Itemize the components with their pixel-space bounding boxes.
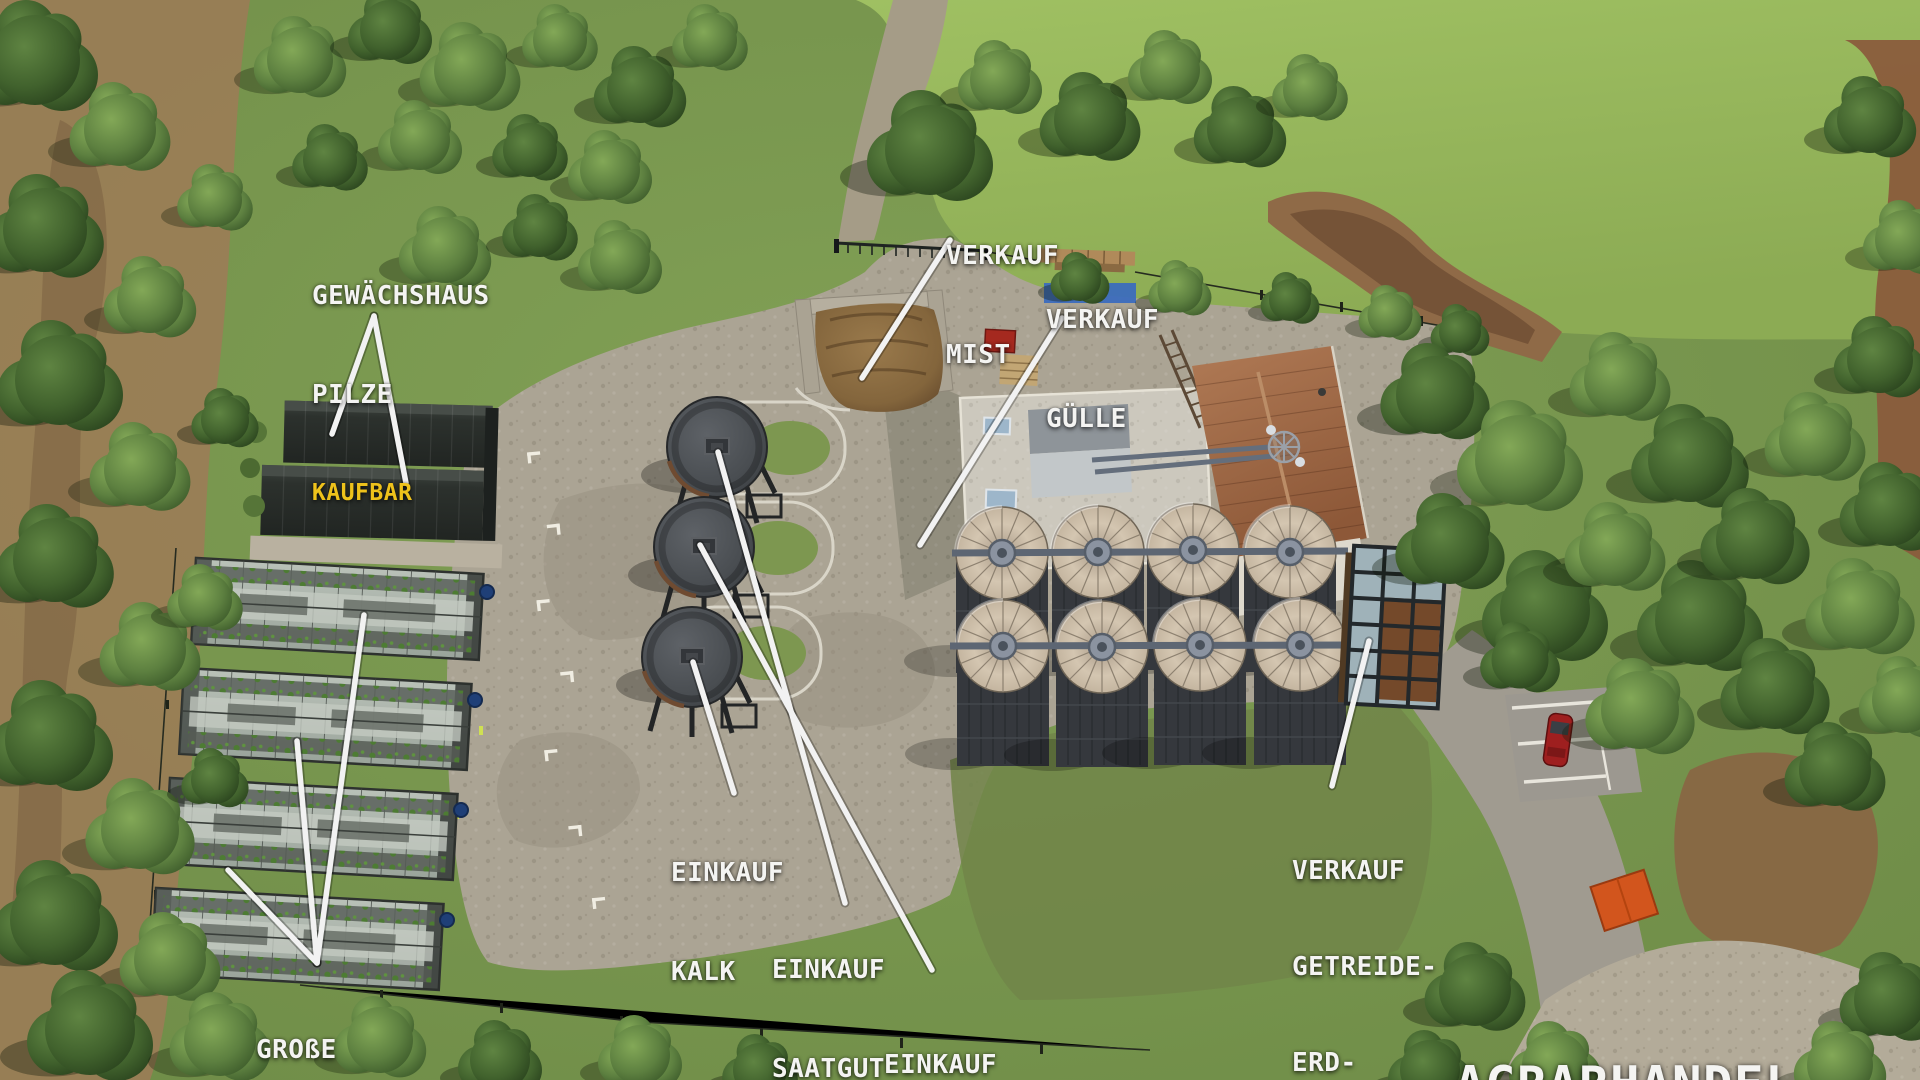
title-line: AGRARHANDEL — [1455, 1058, 1920, 1080]
map-screenshot: GEWÄCHSHAUS PILZE KAUFBAR VERKAUF MIST V… — [0, 0, 1920, 1080]
label-line: EINKAUF — [884, 1049, 1094, 1080]
label-glasgewaechshaeuser: GROßE GLASGEWÄCHSHÄUSER SEPERAT KAUFBAR — [256, 968, 531, 1080]
label-verkauf-guelle: VERKAUF GÜLLE — [1046, 238, 1159, 469]
label-line: GEWÄCHSHAUS — [312, 280, 490, 313]
label-line: EINKAUF — [772, 954, 885, 987]
roof-vent — [1318, 388, 1326, 396]
grain-silos — [904, 504, 1352, 771]
label-line: MIST — [946, 339, 1059, 372]
label-line: VERKAUF — [946, 240, 1059, 273]
label-einkauf-mineralduenger: EINKAUF MINERALDÜNGER — [884, 983, 1094, 1080]
label-line: VERKAUF — [1292, 855, 1502, 887]
hedge-bush — [243, 495, 265, 517]
label-line: KALK — [671, 956, 784, 989]
label-tag-kaufbar: KAUFBAR — [312, 478, 490, 509]
map-title: AGRARHANDEL MEYER UND MAYER — [1455, 950, 1920, 1080]
label-gewaechshaus-pilze: GEWÄCHSHAUS PILZE KAUFBAR — [312, 214, 490, 542]
label-line: VERKAUF — [1046, 304, 1159, 337]
label-line: PILZE — [312, 379, 490, 412]
label-einkauf-saatgut: EINKAUF SAATGUT — [772, 888, 885, 1080]
label-line: SAATGUT — [772, 1053, 885, 1080]
label-verkauf-mist: VERKAUF MIST — [946, 174, 1059, 405]
hedge-bush — [240, 458, 260, 478]
label-line: GÜLLE — [1046, 403, 1159, 436]
label-line: EINKAUF — [671, 857, 784, 890]
label-einkauf-kalk: EINKAUF KALK — [671, 791, 784, 1022]
scene-svg — [0, 0, 1920, 1080]
label-line: GROßE — [256, 1034, 531, 1067]
